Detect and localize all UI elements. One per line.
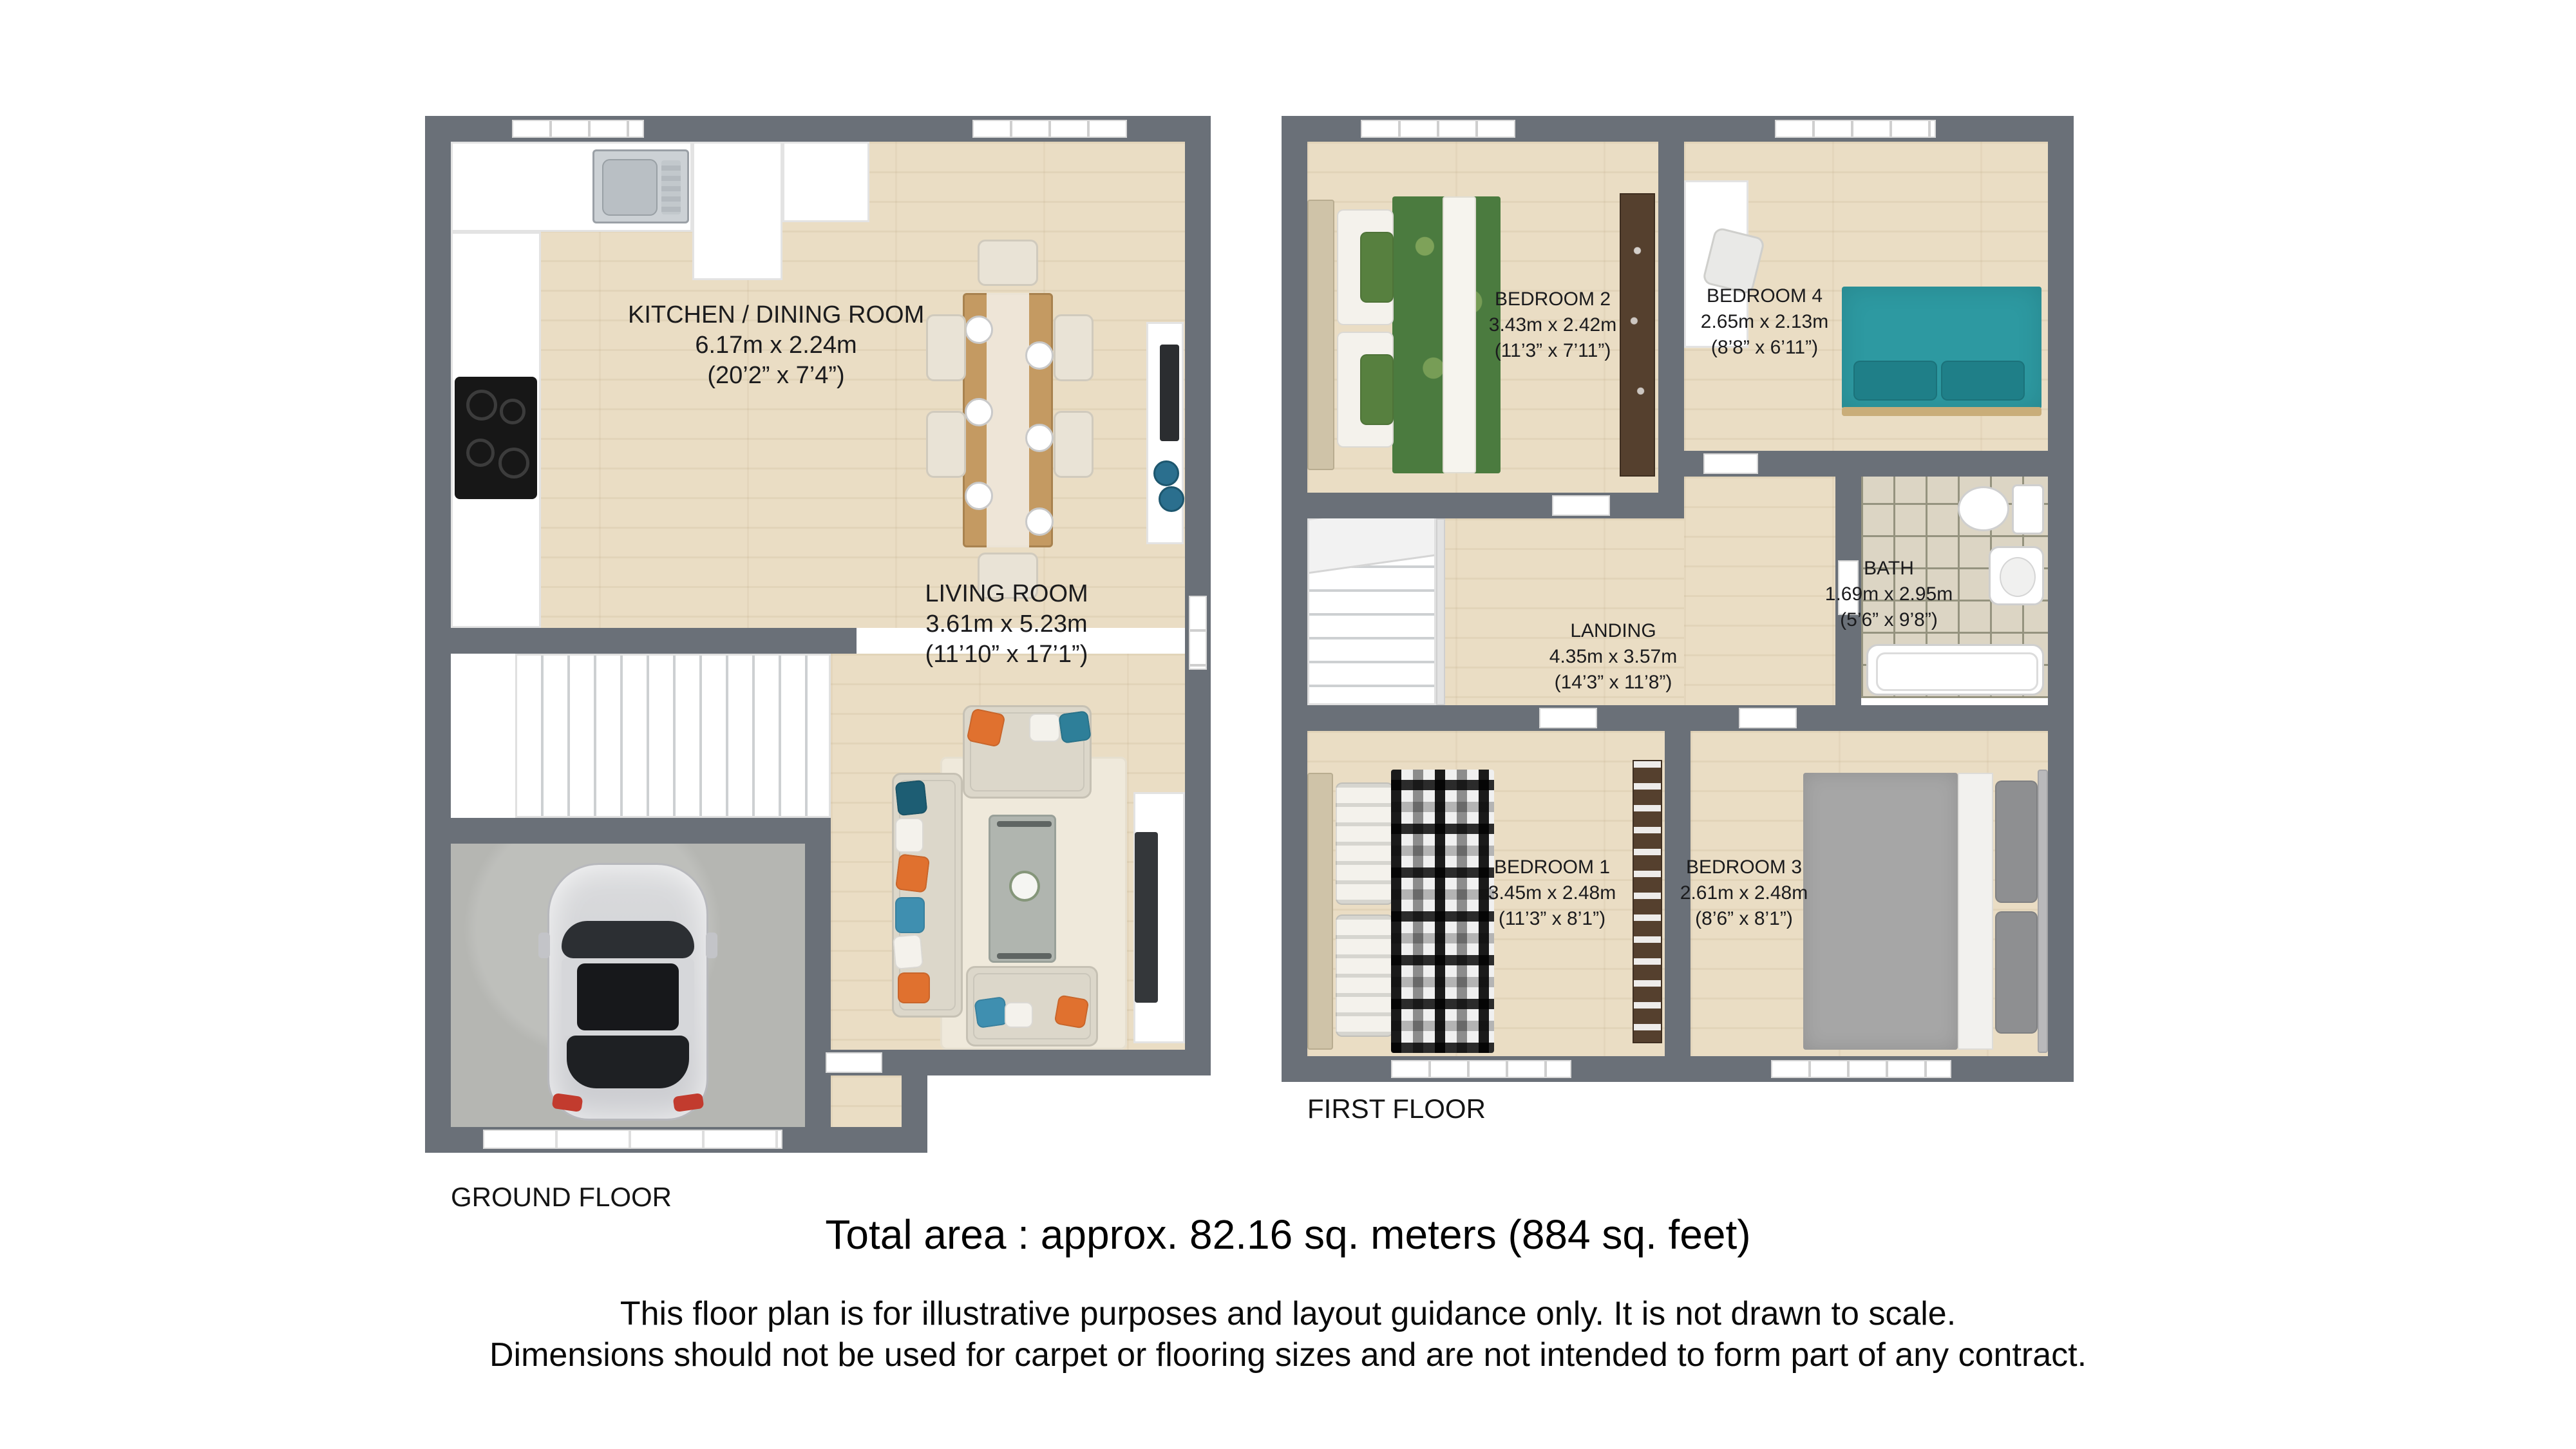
pillow — [974, 996, 1009, 1028]
plate — [965, 482, 993, 510]
kitchen-cabinet — [782, 142, 869, 222]
wall — [451, 628, 857, 654]
coffee-table — [989, 815, 1056, 963]
disclaimer-line2: Dimensions should not be used for carpet… — [0, 1334, 2576, 1376]
bed2-headboard — [1307, 200, 1334, 470]
room-dim-imperial: (14’3” x 11’8”) — [1478, 670, 1748, 696]
staircase-first — [1307, 518, 1436, 705]
bed2-accent-pillow — [1360, 354, 1394, 425]
room-label-landing: LANDING 4.35m x 3.57m (14’3” x 11’8”) — [1478, 618, 1748, 696]
bedroom3-door — [1739, 708, 1797, 728]
wall — [2048, 116, 2074, 1082]
kitchen-sink — [592, 149, 689, 223]
bed4-footboard — [1842, 407, 2041, 416]
pillow — [1054, 994, 1089, 1029]
dining-chair — [926, 314, 966, 381]
tv-screen — [1135, 832, 1158, 1003]
sideboard — [1146, 322, 1184, 544]
room-dim-metric: 2.61m x 2.48m — [1609, 880, 1879, 906]
wall — [425, 818, 831, 844]
disclaimer-text: This floor plan is for illustrative purp… — [0, 1293, 2576, 1376]
bed3-pillow — [1995, 781, 2038, 903]
room-name: LANDING — [1478, 618, 1748, 644]
pillow — [895, 897, 925, 933]
room-dim-imperial: (5’6” x 9’8”) — [1754, 607, 2024, 633]
dining-chair — [1054, 411, 1094, 478]
staircase-ground — [515, 654, 831, 818]
room-dim-imperial: (8’6” x 8’1”) — [1609, 906, 1879, 932]
pillow — [895, 853, 930, 893]
bedroom1-door — [1539, 708, 1597, 728]
bedroom4-door — [1703, 453, 1758, 474]
toilet-tank — [2012, 484, 2044, 535]
toilet — [1958, 486, 2009, 531]
bedroom2-door — [1552, 495, 1610, 516]
plate — [1025, 507, 1054, 536]
pillow — [893, 934, 923, 970]
pillow — [966, 708, 1006, 748]
dining-chair — [978, 240, 1038, 286]
room-dim-imperial: (20’2” x 7’4”) — [628, 361, 924, 391]
pillow — [898, 972, 930, 1003]
bedroom4-window — [1775, 120, 1936, 138]
room-label-bath: BATH 1.69m x 2.95m (5’6” x 9’8”) — [1754, 556, 2024, 633]
dining-chair — [1054, 314, 1094, 381]
kitchen-tall-cupboard — [692, 142, 782, 280]
room-dim-metric: 6.17m x 2.24m — [628, 330, 924, 361]
room-dim-imperial: (8’8” x 6’11”) — [1629, 335, 1900, 361]
porch-floor — [831, 1075, 902, 1127]
bed2-accent-pillow — [1360, 232, 1394, 303]
living-window — [1189, 596, 1207, 670]
wall — [1307, 705, 2048, 731]
room-name: BEDROOM 3 — [1609, 855, 1879, 880]
room-dim-metric: 1.69m x 2.95m — [1754, 582, 2024, 607]
kitchen-window — [512, 120, 644, 138]
room-dim-imperial: (11’10” x 17’1”) — [858, 639, 1155, 670]
pillow — [1029, 714, 1060, 742]
pillow — [1058, 710, 1092, 744]
dining-chair — [926, 411, 966, 478]
bedroom1-window — [1391, 1060, 1571, 1078]
room-name: LIVING ROOM — [858, 579, 1155, 609]
pillow — [895, 818, 923, 853]
bed3-runner — [1958, 773, 1993, 1050]
pillow — [1005, 1002, 1033, 1028]
garage-door — [483, 1130, 782, 1149]
wall — [1307, 493, 1684, 518]
plate — [965, 316, 993, 344]
room-label-living: LIVING ROOM 3.61m x 5.23m (11’10” x 17’1… — [858, 579, 1155, 670]
bed1-pillow — [1336, 914, 1394, 1037]
bed1-headboard — [1307, 773, 1333, 1050]
bed3-headboard — [2038, 770, 2048, 1053]
pillow — [895, 780, 927, 817]
bed4-pillow — [1853, 361, 1937, 401]
total-area-text: Total area : approx. 82.16 sq. meters (8… — [0, 1211, 2576, 1258]
wall — [927, 1050, 1211, 1075]
bed3-pillow — [1995, 911, 2038, 1034]
floor-plan-scene: KITCHEN / DINING ROOM 6.17m x 2.24m (20’… — [0, 0, 2576, 1449]
ground-floor-title: GROUND FLOOR — [451, 1182, 672, 1213]
room-dim-metric: 3.61m x 5.23m — [858, 609, 1155, 639]
disclaimer-line1: This floor plan is for illustrative purp… — [0, 1293, 2576, 1334]
room-name: KITCHEN / DINING ROOM — [628, 300, 924, 330]
room-dim-metric: 4.35m x 3.57m — [1478, 644, 1748, 670]
dining-window — [972, 120, 1127, 138]
bathtub — [1866, 644, 2044, 696]
wall — [1282, 116, 1307, 1082]
front-door — [826, 1052, 882, 1073]
wall — [805, 1127, 927, 1153]
room-name: BEDROOM 4 — [1629, 283, 1900, 309]
stair-railing — [1436, 518, 1445, 705]
bed1-pillow — [1336, 782, 1394, 905]
room-name: BATH — [1754, 556, 2024, 582]
plate — [1025, 424, 1054, 452]
bedroom3-window — [1771, 1060, 1951, 1078]
plate — [965, 398, 993, 426]
wall — [425, 116, 451, 1153]
stair-side-void — [451, 654, 515, 818]
bed4-pillow — [1941, 361, 2025, 401]
room-label-kitchen: KITCHEN / DINING ROOM 6.17m x 2.24m (20’… — [628, 300, 924, 391]
room-label-bedroom4: BEDROOM 4 2.65m x 2.13m (8’8” x 6’11”) — [1629, 283, 1900, 361]
wall — [805, 818, 831, 1153]
bedroom2-window — [1361, 120, 1515, 138]
table-runner — [987, 293, 1029, 547]
first-floor-title: FIRST FLOOR — [1307, 1094, 1486, 1124]
cooktop — [455, 377, 537, 499]
room-dim-metric: 2.65m x 2.13m — [1629, 309, 1900, 335]
plate — [1025, 341, 1054, 370]
room-label-bedroom3: BEDROOM 3 2.61m x 2.48m (8’6” x 8’1”) — [1609, 855, 1879, 932]
